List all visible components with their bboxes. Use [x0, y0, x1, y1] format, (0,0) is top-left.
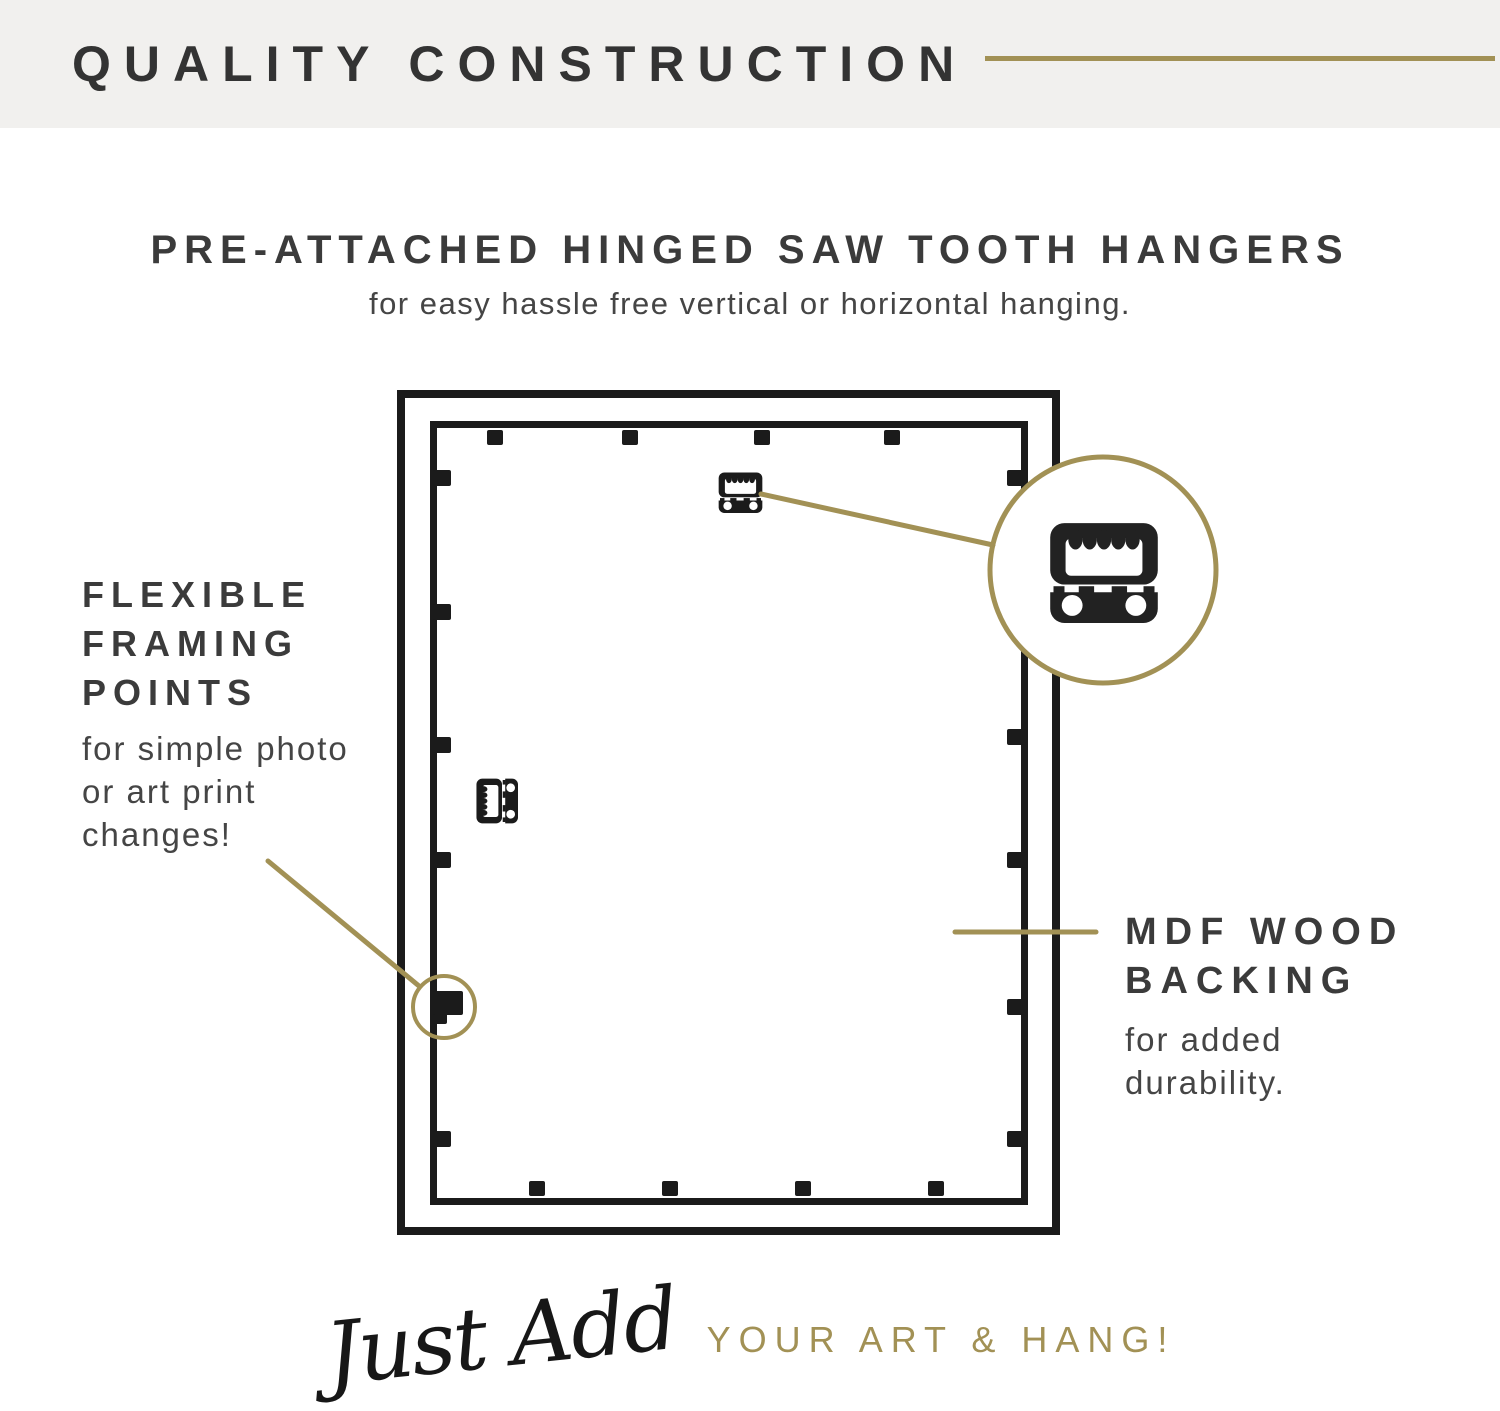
section-title: PRE-ATTACHED HINGED SAW TOOTH HANGERS: [0, 228, 1500, 273]
framing-point: [487, 430, 503, 445]
callout-body-line: for simple photo: [82, 727, 349, 770]
sawtooth-hanger-icon: [718, 472, 763, 513]
section-subtitle: for easy hassle free vertical or horizon…: [0, 286, 1500, 322]
callout-body-line: durability.: [1125, 1061, 1404, 1104]
framing-point: [795, 1181, 811, 1196]
page-title: QUALITY CONSTRUCTION: [72, 0, 967, 128]
framing-point: [433, 470, 451, 486]
callout-title-line: FRAMING: [82, 619, 349, 668]
callout-title-line: POINTS: [82, 668, 349, 717]
footer-tagline: Just Add YOUR ART & HANG!: [0, 1262, 1500, 1411]
framing-point: [1007, 852, 1025, 868]
framing-point: [433, 737, 451, 753]
framing-point: [529, 1181, 545, 1196]
callout-body-line: or art print: [82, 770, 349, 813]
framing-point: [884, 430, 900, 445]
callout-body-line: for added: [1125, 1018, 1404, 1061]
hinged-sawtooth-hanger-icon: [476, 778, 518, 824]
callout-title-line: MDF WOOD: [1125, 908, 1404, 957]
framing-point: [754, 430, 770, 445]
callout-mdf-wood-backing: MDF WOOD BACKING for added durability.: [1125, 908, 1404, 1104]
callout-title-line: BACKING: [1125, 957, 1404, 1006]
callout-body-line: changes!: [82, 813, 349, 856]
header-accent-rule: [985, 56, 1495, 61]
framing-point: [622, 430, 638, 445]
magnified-sawtooth-hanger-icon: [1049, 522, 1159, 623]
framing-point: [662, 1181, 678, 1196]
framing-point: [928, 1181, 944, 1196]
framing-point: [1007, 729, 1025, 745]
framing-point: [1007, 1131, 1025, 1147]
framing-point-callout-circle: [411, 974, 477, 1040]
framing-point: [1007, 999, 1025, 1015]
footer-script-text: Just Add: [320, 1268, 681, 1404]
framing-point: [433, 852, 451, 868]
header-bar: QUALITY CONSTRUCTION: [0, 0, 1500, 128]
footer-caps-text: YOUR ART & HANG!: [707, 1319, 1176, 1361]
callout-title-line: FLEXIBLE: [82, 570, 349, 619]
frame-backing-board: [430, 421, 1028, 1205]
framing-point: [1007, 470, 1025, 486]
callout-flexible-framing-points: FLEXIBLE FRAMING POINTS for simple photo…: [82, 570, 349, 856]
framing-point: [433, 604, 451, 620]
framing-point: [433, 1131, 451, 1147]
